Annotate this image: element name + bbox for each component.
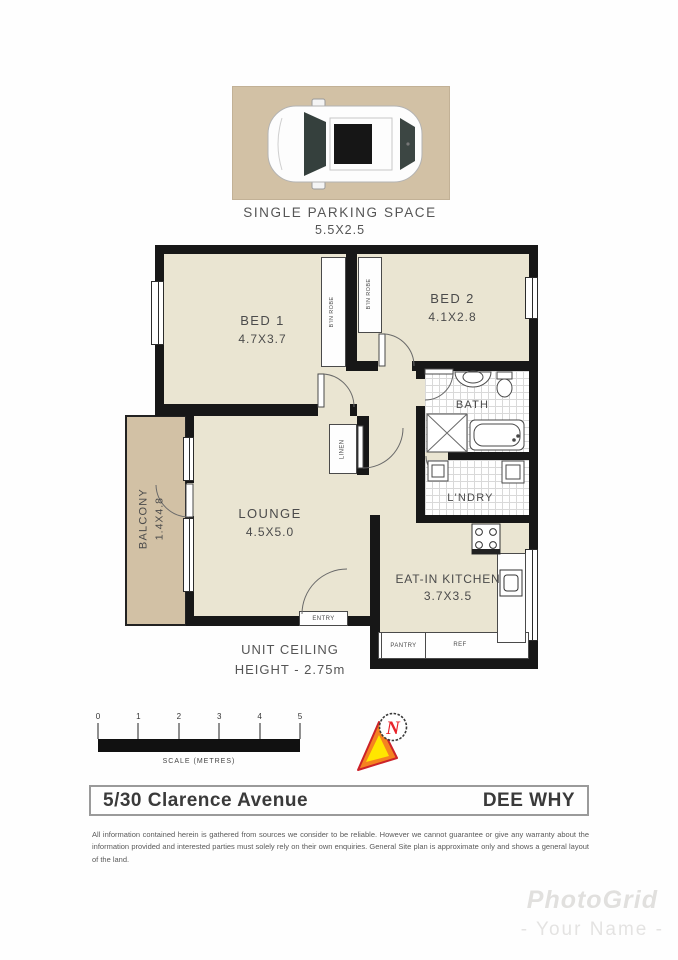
scale-tick: 0 [96,712,100,721]
entry-door-threshold: ENTRY [299,611,348,626]
room-size: 4.5X5.0 [200,524,340,541]
wall-segment [416,406,425,515]
suburb: DEE WHY [483,790,575,812]
fridge-label: REF [438,641,482,650]
wall-segment [416,371,425,379]
ceiling-note: UNIT CEILING HEIGHT - 2.75m [195,640,385,679]
window [525,549,538,641]
robe2-label: B'IN ROBE [366,259,374,329]
ceiling-note-line1: UNIT CEILING [195,640,385,660]
wall-segment [416,515,529,523]
room-size: 3.7X3.5 [382,588,514,605]
parking-label: SINGLE PARKING SPACE [190,203,490,223]
scale-bar-rule [98,739,300,752]
street-address: 5/30 Clarence Avenue [103,790,308,812]
scale-tick: 5 [298,712,302,721]
room-name: LOUNGE [200,505,340,524]
disclaimer-text: All information contained herein is gath… [92,829,589,866]
pantry-closet: PANTRY [381,632,426,659]
watermark: PhotoGrid - Your Name - [521,886,664,941]
scale-bar: 0 1 2 3 4 5 SCALE (METRES) [98,712,300,770]
wall-segment [416,452,425,460]
robe1-label: B'IN ROBE [329,277,337,347]
wall-segment [186,616,379,626]
parking-size-label: 5.5X2.5 [190,221,490,239]
wall-segment [155,404,318,416]
bed2-label: BED 2 4.1X2.8 [385,290,520,326]
kitchen-label: EAT-IN KITCHEN 3.7X3.5 [382,571,514,606]
room-name: EAT-IN KITCHEN [382,571,514,588]
floor-plan-page: SINGLE PARKING SPACE 5.5X2.5 PANTRY REF … [0,0,678,960]
scale-tick: 2 [177,712,181,721]
room-size: 4.1X2.8 [385,309,520,326]
ceiling-note-line2: HEIGHT - 2.75m [195,660,385,680]
lounge-label: LOUNGE 4.5X5.0 [200,505,340,541]
window [525,277,538,319]
wall-segment [412,361,529,371]
room-name: BED 1 [195,312,330,331]
wall-segment [346,254,357,371]
parking-space [232,86,450,200]
scale-bar-caption: SCALE (METRES) [98,758,300,765]
wall-segment [357,416,369,475]
bath-label: BATH [430,398,515,414]
scale-tick: 3 [217,712,221,721]
address-bar: 5/30 Clarence Avenue DEE WHY [89,785,589,816]
window [183,437,194,481]
bed1-label: BED 1 4.7X3.7 [195,312,330,348]
balcony-label: BALCONY 1.4X4.8 [136,459,167,579]
room-size: 1.4X4.8 [152,459,167,579]
watermark-brand: PhotoGrid [521,886,664,915]
laundry-label: L'NDRY [428,491,513,507]
north-letter: N [385,718,401,739]
pantry-label: PANTRY [390,643,416,649]
wall-segment [155,245,538,254]
wall-segment [346,361,378,371]
wall-segment [350,404,357,416]
linen-label: LINEN [339,425,348,473]
room-size: 4.7X3.7 [195,331,330,348]
room-name: BED 2 [385,290,520,309]
window [151,281,164,345]
wall-segment [370,659,538,669]
watermark-name: - Your Name - [521,919,664,941]
entry-label: ENTRY [312,616,334,622]
room-name: BALCONY [136,459,152,579]
scale-tick: 4 [257,712,261,721]
wall-segment [448,452,529,460]
north-arrow-icon: N [358,714,407,771]
scale-tick: 1 [136,712,140,721]
window [183,518,194,592]
